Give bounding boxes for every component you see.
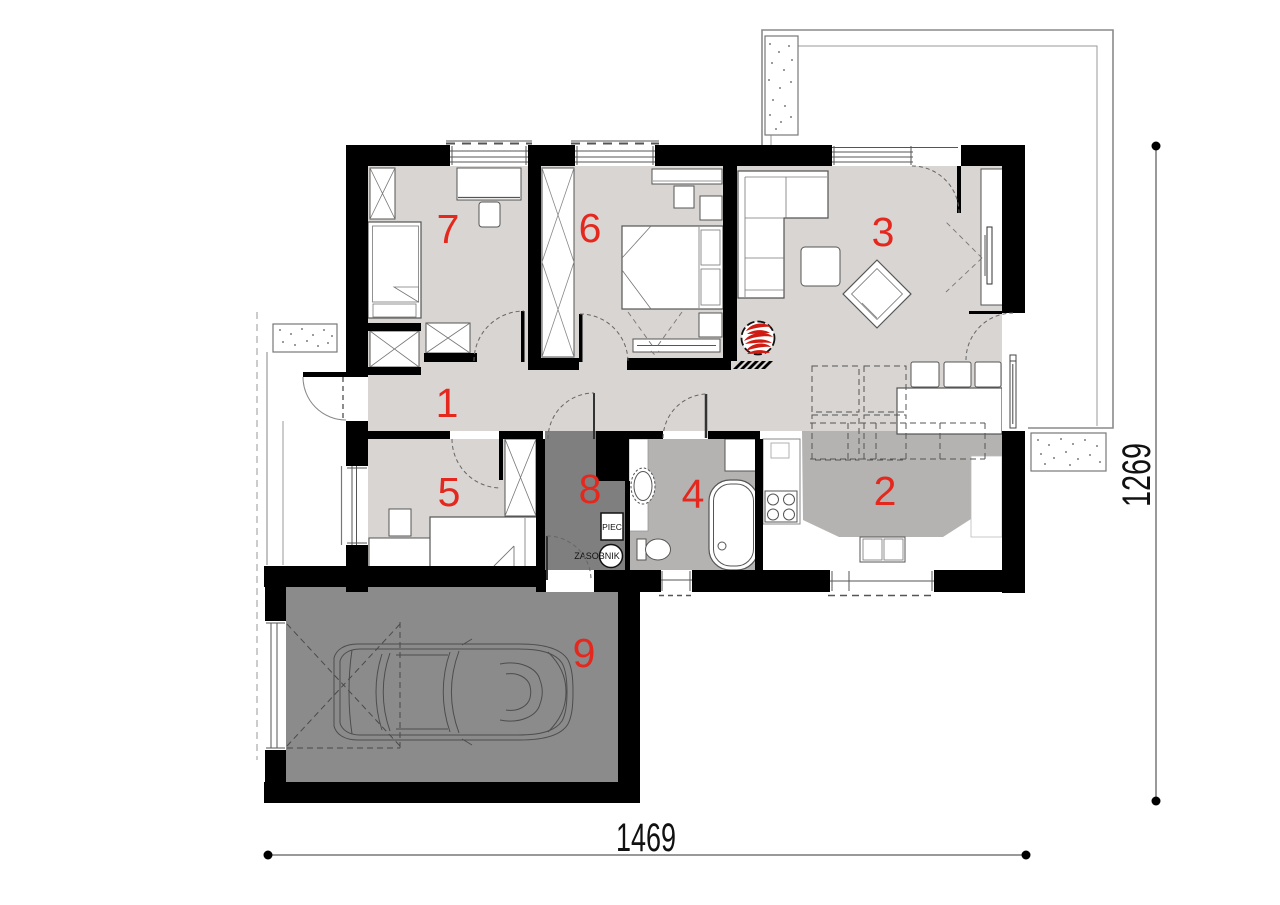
svg-text:1269: 1269 <box>1115 443 1159 507</box>
svg-text:7: 7 <box>437 206 460 252</box>
svg-text:6: 6 <box>579 205 602 251</box>
svg-text:8: 8 <box>579 466 602 512</box>
svg-text:2: 2 <box>874 468 897 514</box>
svg-text:3: 3 <box>872 209 895 255</box>
svg-text:1469: 1469 <box>616 816 676 860</box>
svg-text:4: 4 <box>682 471 705 517</box>
svg-text:9: 9 <box>573 630 596 676</box>
svg-text:5: 5 <box>438 469 461 515</box>
svg-text:1: 1 <box>436 380 459 426</box>
svg-text:PIEC: PIEC <box>602 522 622 532</box>
svg-text:ZASOBNIK: ZASOBNIK <box>574 551 620 561</box>
